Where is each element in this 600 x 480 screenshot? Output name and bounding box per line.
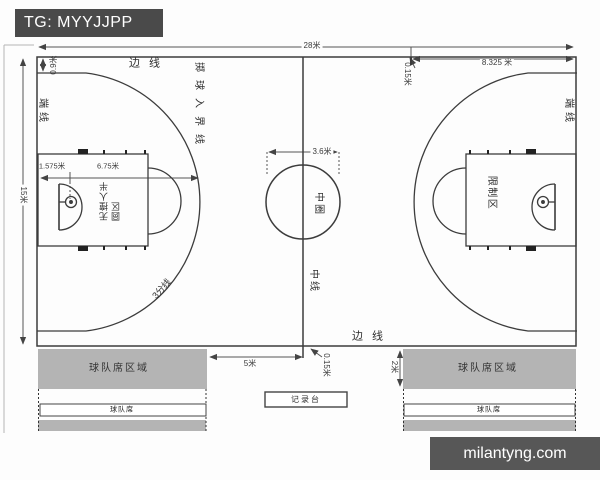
label-no-charge-semicircle: 无撞人半圆区 [98,181,122,221]
dim-center-circle: 3.6米 [310,148,333,156]
label-bench-area-right: 球队席区域 [458,364,518,374]
free-throw-semicircle-right [433,168,466,234]
dim-endline-to-basket: 1.575米 [39,162,65,170]
tg-badge: TG: MYYJJPP [15,9,163,37]
label-bench-area-left: 球队席区域 [89,364,149,374]
dim-throw-in-distance: 8.325 米 [480,59,514,67]
paint-hash-marks-right [469,149,536,251]
dim-bench-depth: 2米 [390,359,398,375]
label-sideline-bottom: 边 线 [352,332,386,343]
label-bench-left: 球队席 [110,407,134,414]
label-throw-in-line: 掷球入界线 [193,62,203,152]
label-center-circle: 中圈 [313,192,323,216]
label-sideline-top: 边 线 [129,59,163,70]
team-bench-areas [38,349,576,431]
label-endline-left: 端线 [37,98,47,126]
label-endline-right: 端线 [563,98,573,126]
basketball-court-diagram: TG: MYYJJPP milantyng.com 28米 8.325 米 0.… [0,0,600,480]
page-frame [4,45,34,433]
dim-court-width: 15米 [19,185,27,206]
dim-mark-bottom: 0.15米 [322,351,330,379]
dim-mark-top: 0.15米 [403,60,411,88]
dim-three-point-offset: 0.9米 [50,53,58,76]
watermark: milantyng.com [430,437,600,470]
dim-court-length: 28米 [302,42,323,50]
court-linework [0,0,600,480]
paint-right [466,154,576,246]
dim-bench-to-center: 5米 [242,360,258,368]
label-scorer-table: 记录台 [291,396,321,404]
label-center-line: 中线 [308,269,318,293]
label-restricted-area: 限制区 [486,176,496,211]
dim-three-point-radius: 6.75米 [97,162,119,170]
label-bench-right: 球队席 [477,407,501,414]
